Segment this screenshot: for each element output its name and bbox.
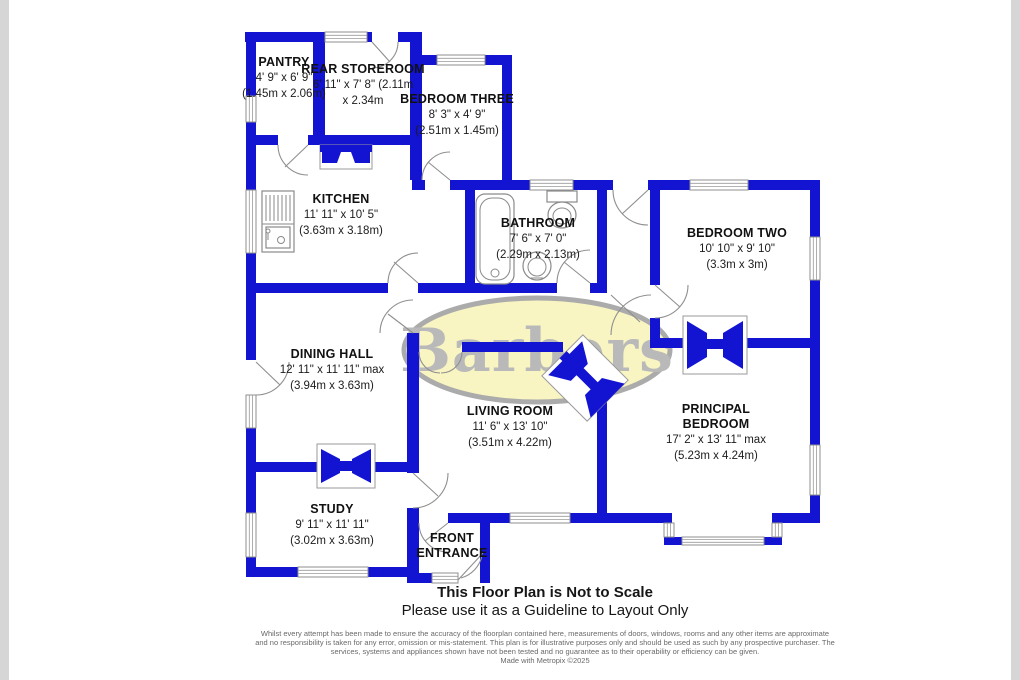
door-bedroom-two xyxy=(655,285,688,318)
wash-basin xyxy=(523,252,551,280)
window-principal-right xyxy=(810,445,820,495)
door-study-hall xyxy=(413,473,448,508)
window-pantry-left xyxy=(246,96,256,122)
window-bay-right xyxy=(772,523,782,537)
toilet xyxy=(547,191,577,228)
window-bedroom-two-right xyxy=(810,237,820,280)
door-rear-hall xyxy=(613,190,648,225)
window-storeroom-top xyxy=(325,32,367,42)
fireplace-dining xyxy=(317,444,375,488)
metropix-credit: Made with Metropix ©2025 xyxy=(255,656,835,665)
door-porch-top xyxy=(419,523,448,552)
floor-plan-svg: Barbers xyxy=(0,0,1020,680)
window-living-bottom xyxy=(510,513,570,523)
door-dining-left xyxy=(256,362,289,395)
window-kitchen-left xyxy=(246,190,256,253)
footer-disclaimer-block: Whilst every attempt has been made to en… xyxy=(255,629,835,665)
window-study-bottom xyxy=(298,567,368,577)
fireplace-kitchen xyxy=(320,145,372,169)
floorplan-page: Barbers xyxy=(0,0,1020,680)
kitchen-sink-unit xyxy=(262,191,294,252)
door-front xyxy=(458,553,483,580)
footer-guideline: Please use it as a Guideline to Layout O… xyxy=(402,602,689,619)
window-bedroom-three-top xyxy=(437,55,485,65)
bathtub xyxy=(476,194,514,284)
window-bay-bottom xyxy=(682,537,764,545)
door-kitchen xyxy=(388,253,418,283)
door-storeroom-top xyxy=(372,42,398,68)
window-bedroom-two-top xyxy=(690,180,748,190)
window-bay-left xyxy=(664,523,674,537)
door-bathroom xyxy=(557,250,590,283)
footer-not-to-scale: This Floor Plan is Not to Scale xyxy=(437,584,653,601)
door-bedroom-three xyxy=(422,152,450,180)
door-pantry xyxy=(278,145,308,175)
disclaimer-text: Whilst every attempt has been made to en… xyxy=(255,629,835,656)
fireplace-principal xyxy=(683,316,747,374)
window-dining-left xyxy=(246,395,256,428)
window-study-left xyxy=(246,513,256,557)
window-bathroom-top xyxy=(530,180,573,190)
window-porch-bottom xyxy=(432,573,458,583)
